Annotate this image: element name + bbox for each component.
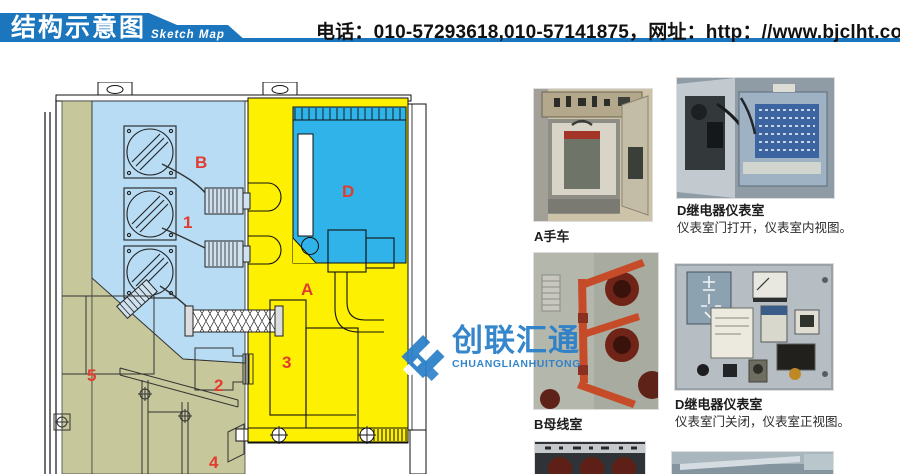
company-name-cn: 创联汇通 [452,324,581,358]
label-5: 5 [87,366,96,385]
photo-handcart [534,89,652,221]
company-name-en: CHUANGLIANHUITONG [452,358,581,370]
label-B: B [195,153,207,172]
label-3: 3 [282,353,291,372]
photo-instrument-room-closed [675,264,833,390]
photo-bottom-left-partial [535,442,645,474]
wall-bushing [185,306,283,336]
photo-instrument-room-open [677,78,834,198]
photo-bottom-right-partial [672,452,833,474]
switchgear-structure-diagram: B 1 D A 3 2 5 4 [42,82,440,474]
company-logo-icon [400,324,446,392]
breaker-base [236,426,408,444]
contact-info: 电话：010-57293618,010-57141875，网址：http：//w… [316,17,900,44]
rear-channel [408,104,426,474]
caption-photo-d-closed-desc: 仪表室门关闭，仪表室正视图。 [675,411,850,430]
instrument-duct [298,134,313,236]
label-2: 2 [214,376,223,395]
label-A: A [301,280,313,299]
caption-photo-b: B母线室 [534,414,582,433]
page-title-en: Sketch Map [151,29,225,41]
label-4: 4 [209,453,219,472]
spout-insulator [205,188,250,214]
company-watermark: 创联汇通 CHUANGLIANHUITONG [400,324,581,392]
label-1: 1 [183,213,192,232]
label-D: D [342,182,354,201]
caption-photo-d-open-desc: 仪表室门打开，仪表室内视图。 [677,217,852,236]
page-title: 结构示意图 [11,13,146,42]
spout-insulator [205,241,250,267]
caption-photo-a: A手车 [534,226,569,245]
